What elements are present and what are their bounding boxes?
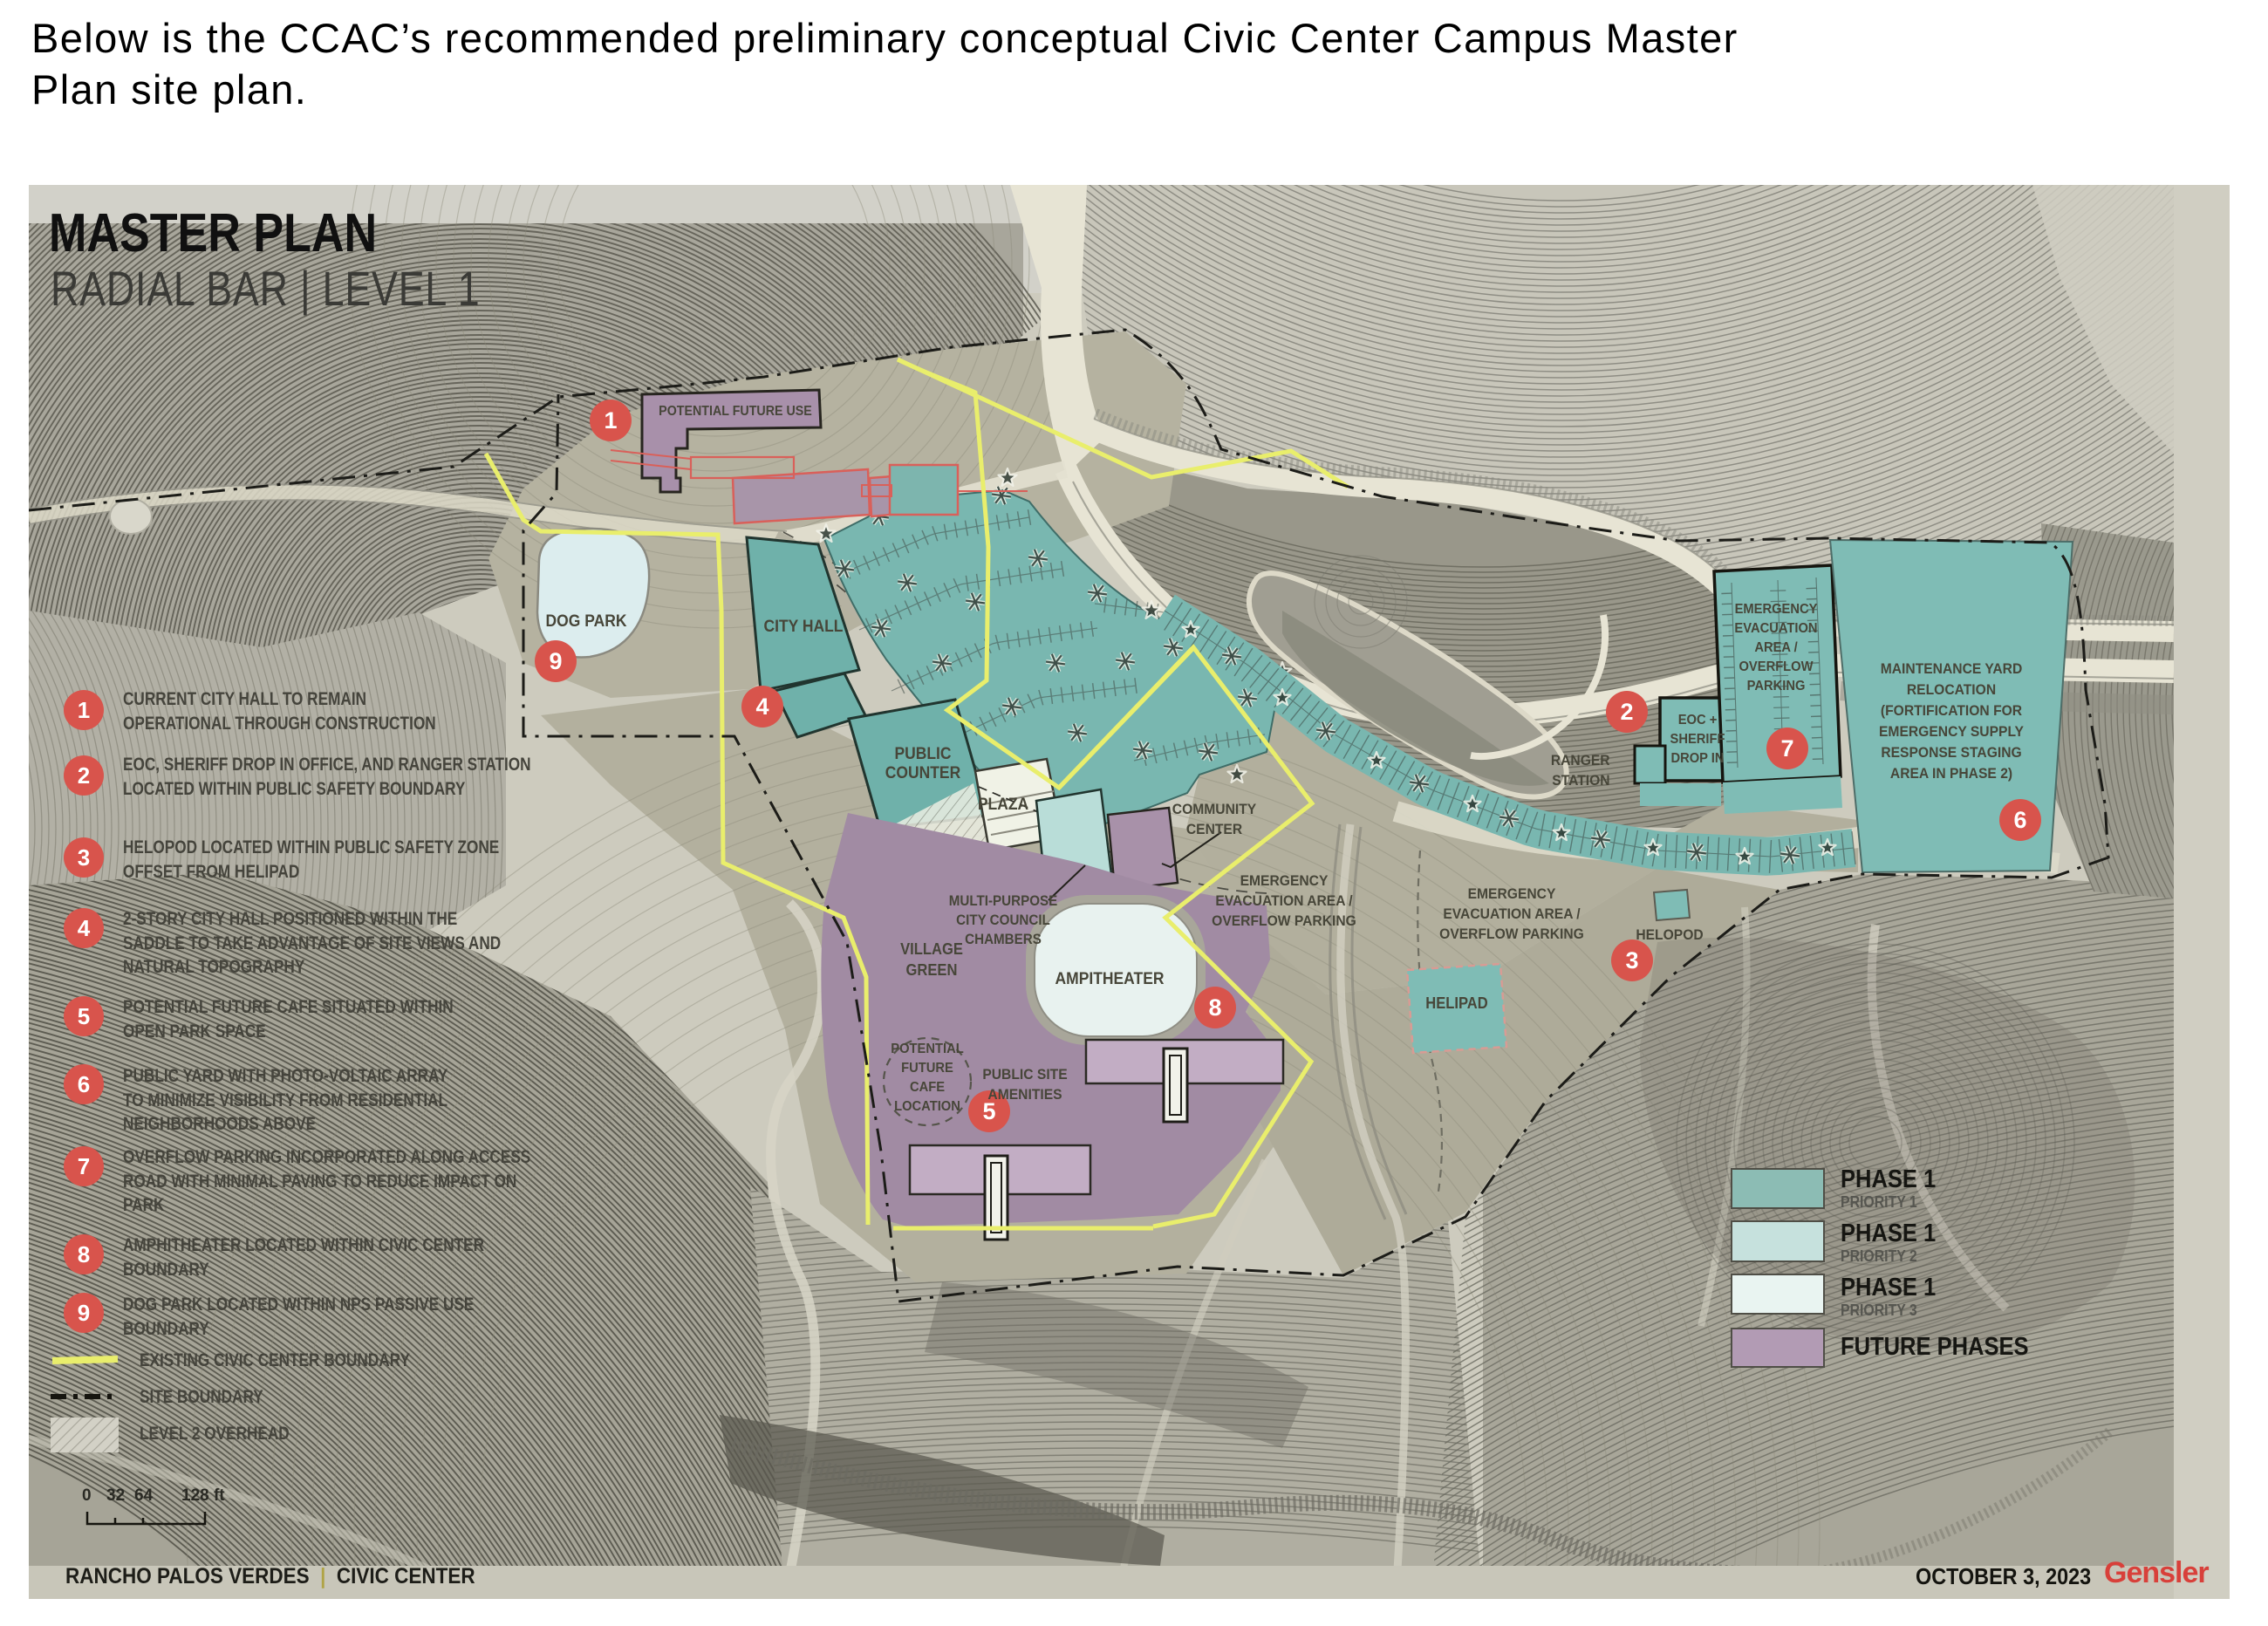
svg-text:6: 6 (78, 1071, 90, 1097)
svg-text:5: 5 (78, 1003, 90, 1029)
svg-text:2: 2 (78, 762, 90, 789)
svg-text:8: 8 (78, 1241, 90, 1267)
svg-text:7: 7 (78, 1153, 90, 1179)
svg-text:3: 3 (78, 844, 90, 871)
svg-text:1: 1 (78, 697, 90, 723)
svg-text:3: 3 (1625, 947, 1638, 974)
svg-text:8: 8 (1208, 994, 1221, 1021)
svg-text:4: 4 (755, 693, 769, 720)
svg-text:6: 6 (2013, 807, 2026, 833)
svg-text:4: 4 (78, 915, 91, 941)
svg-text:9: 9 (549, 648, 562, 674)
svg-text:9: 9 (78, 1300, 90, 1326)
